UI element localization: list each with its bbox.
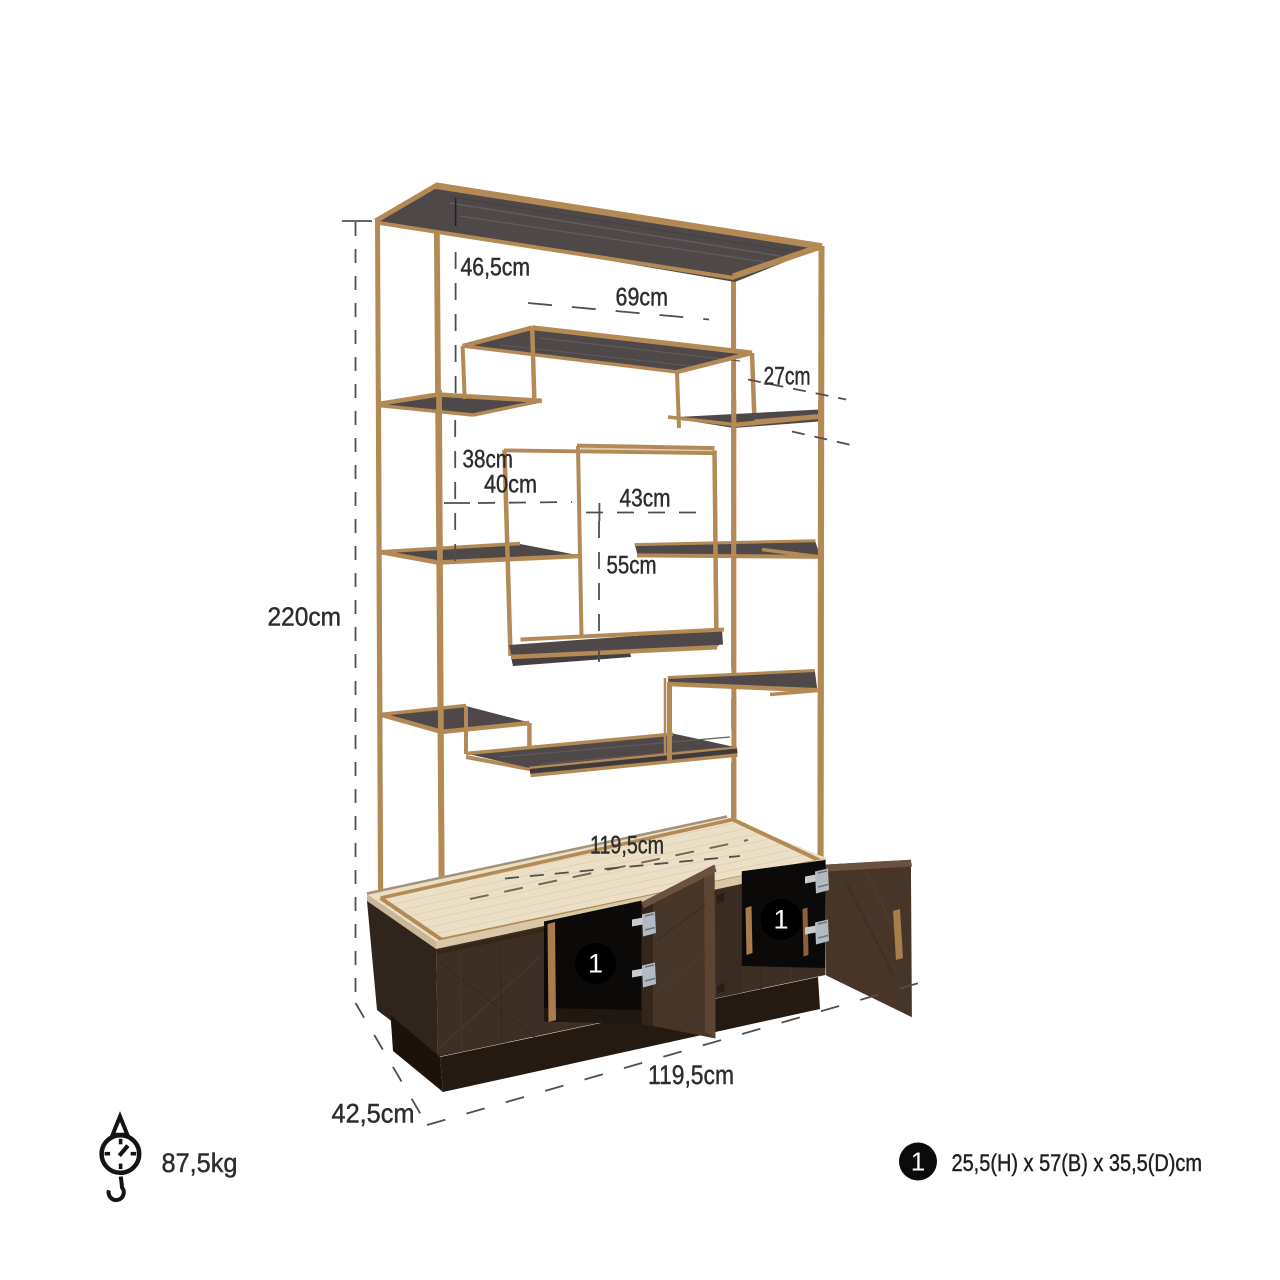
svg-text:46,5cm: 46,5cm bbox=[461, 254, 531, 282]
svg-text:25,5(H) x 57(B) x 35,5(D)cm: 25,5(H) x 57(B) x 35,5(D)cm bbox=[952, 1150, 1203, 1177]
svg-text:1: 1 bbox=[588, 949, 603, 979]
svg-text:1: 1 bbox=[911, 1147, 925, 1177]
svg-text:40cm: 40cm bbox=[484, 471, 537, 499]
svg-text:55cm: 55cm bbox=[607, 552, 657, 580]
svg-text:119,5cm: 119,5cm bbox=[648, 1060, 734, 1090]
svg-text:69cm: 69cm bbox=[616, 284, 669, 312]
svg-text:119,5cm: 119,5cm bbox=[590, 832, 664, 860]
svg-text:42,5cm: 42,5cm bbox=[332, 1099, 415, 1129]
svg-text:38cm: 38cm bbox=[463, 446, 514, 474]
svg-text:27cm: 27cm bbox=[764, 363, 811, 391]
svg-text:1: 1 bbox=[773, 905, 788, 935]
svg-text:220cm: 220cm bbox=[268, 602, 342, 632]
svg-text:87,5kg: 87,5kg bbox=[162, 1148, 238, 1178]
svg-text:43cm: 43cm bbox=[620, 485, 671, 513]
